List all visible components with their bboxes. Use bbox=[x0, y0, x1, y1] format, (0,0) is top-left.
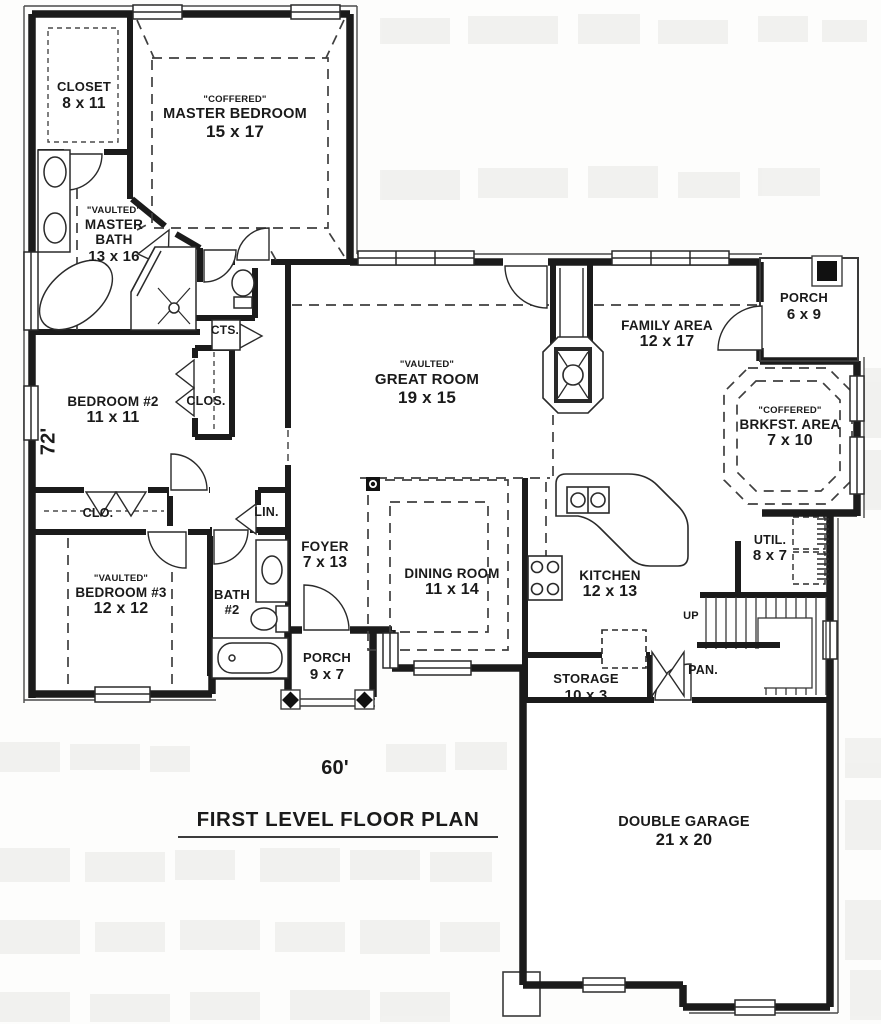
sink-icon bbox=[262, 556, 282, 584]
porch-rear-floor bbox=[760, 258, 858, 361]
pedestal-sink-icon bbox=[232, 270, 254, 296]
tub-basin bbox=[218, 643, 282, 673]
refrigerator-dashed bbox=[602, 630, 646, 668]
floor-plan-drawing bbox=[0, 0, 881, 1024]
toilet-icon bbox=[251, 608, 277, 630]
porch-rear-column bbox=[817, 261, 837, 281]
sink-icon bbox=[44, 157, 66, 187]
sink-icon bbox=[44, 213, 66, 243]
toilet-tank bbox=[276, 606, 289, 632]
floor-plan-page: CLOSET 8 x 11 "COFFERED" MASTER BEDROOM … bbox=[0, 0, 881, 1024]
cts-cabinet bbox=[212, 320, 240, 350]
column-posts bbox=[366, 477, 380, 491]
